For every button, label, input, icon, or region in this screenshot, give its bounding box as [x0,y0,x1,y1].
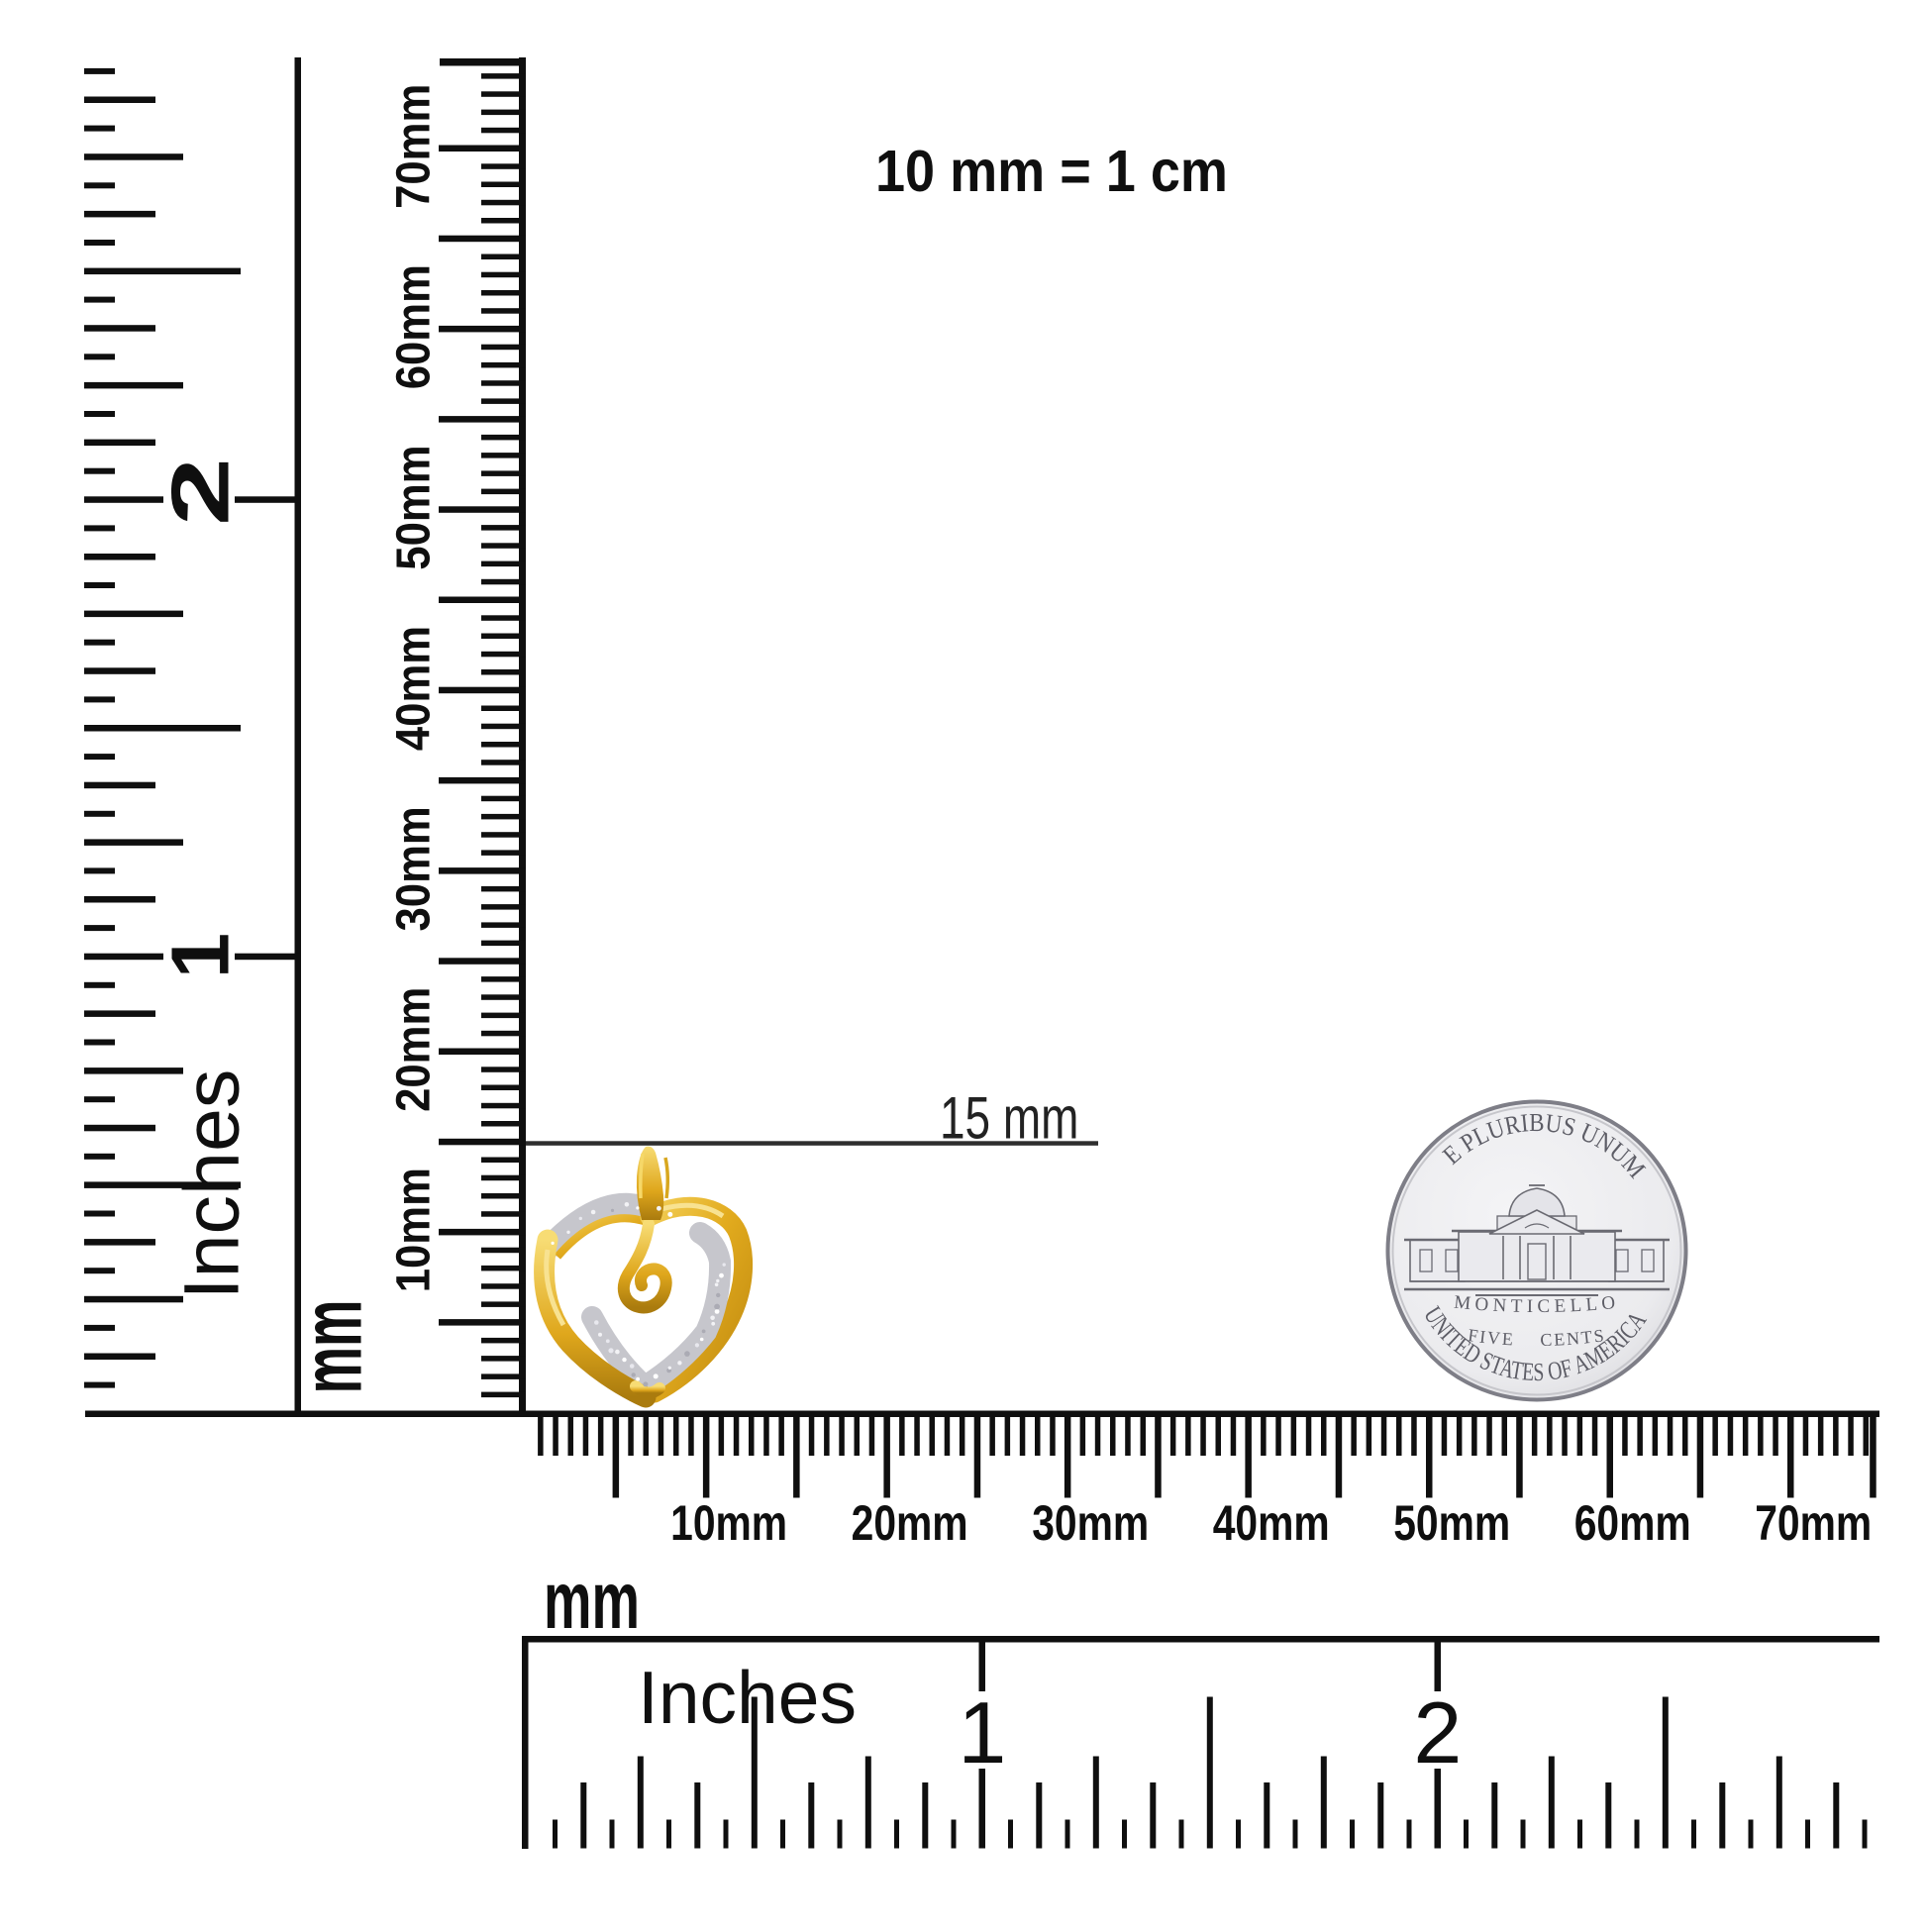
svg-text:10mm: 10mm [386,1168,440,1292]
svg-text:2: 2 [1413,1683,1462,1781]
svg-text:mm: mm [285,1300,380,1394]
svg-text:1: 1 [958,1683,1006,1781]
svg-text:20mm: 20mm [386,987,440,1112]
svg-text:Inches: Inches [638,1656,857,1739]
svg-text:2: 2 [154,458,247,526]
svg-text:50mm: 50mm [386,445,440,569]
svg-text:50mm: 50mm [1393,1495,1510,1551]
svg-text:30mm: 30mm [1032,1495,1149,1551]
svg-text:mm: mm [544,1555,640,1646]
svg-text:10mm: 10mm [670,1495,787,1551]
svg-text:40mm: 40mm [1213,1495,1330,1551]
svg-text:60mm: 60mm [1574,1495,1691,1551]
svg-text:10 mm = 1 cm: 10 mm = 1 cm [875,139,1228,204]
svg-text:70mm: 70mm [386,84,440,209]
svg-text:1: 1 [154,933,247,978]
svg-text:Inches: Inches [167,1069,255,1300]
svg-text:20mm: 20mm [852,1495,968,1551]
svg-text:40mm: 40mm [386,626,440,751]
svg-text:70mm: 70mm [1755,1495,1872,1551]
svg-text:15 mm: 15 mm [940,1086,1078,1152]
svg-text:60mm: 60mm [386,264,440,389]
svg-text:30mm: 30mm [386,806,440,931]
